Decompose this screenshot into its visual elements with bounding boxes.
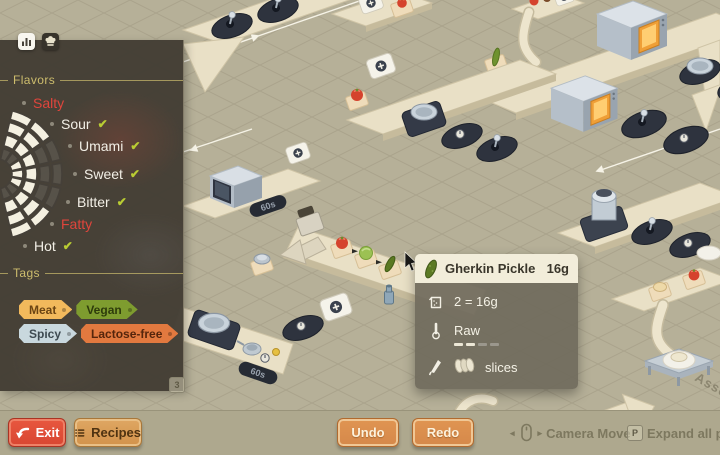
check-icon: ✔	[63, 239, 73, 253]
mouse-icon	[519, 422, 534, 444]
flavor-hot: Hot ✔	[23, 238, 73, 254]
tag-meat: Meat	[19, 300, 72, 319]
flavor-fatty: Fatty ✔	[50, 216, 92, 232]
tags-section-header: Tags	[0, 266, 183, 280]
list-icon	[75, 427, 85, 439]
bottom-bar: Exit Recipes Undo Redo ◂ ▸ Camera Move P…	[0, 410, 720, 455]
dial[interactable]	[297, 322, 305, 330]
cook-progress-segment	[466, 343, 475, 346]
item-tooltip: Gherkin Pickle 16g 2 = 16g Raw slices	[415, 254, 578, 389]
slices-icon	[454, 357, 476, 377]
flavor-dot-icon	[22, 101, 26, 105]
tooltip-header: Gherkin Pickle 16g	[415, 254, 578, 283]
tag-vegan: Vegan	[76, 300, 137, 319]
tooltip-state: Raw	[454, 323, 480, 338]
cooking-pot[interactable]	[687, 58, 713, 74]
tag-lactose-free: Lactose-free	[81, 324, 178, 343]
cook-progress-segment	[454, 343, 463, 346]
butter[interactable]	[273, 349, 280, 356]
panel-shortcut-key: 3	[169, 377, 185, 393]
ingredient-info-panel: Flavors Salty ✔ Sour ✔ Umami ✔ Sweet ✔ B…	[0, 40, 184, 391]
tag-spicy: Spicy	[19, 324, 77, 343]
flavor-wheel-cell	[39, 165, 50, 183]
tooltip-title: Gherkin Pickle	[445, 261, 540, 276]
thermometer-icon	[427, 321, 445, 340]
flavor-dot-icon	[50, 122, 54, 126]
tooltip-quantity: 2 = 16g	[454, 294, 498, 309]
back-arrow-icon	[15, 426, 30, 440]
flavor-dot-icon	[23, 244, 27, 248]
expand-shortcut-key: P	[627, 425, 643, 441]
chef-hat-icon	[42, 33, 59, 50]
recipes-button[interactable]: Recipes	[74, 418, 142, 447]
flavor-dot-icon	[50, 222, 54, 226]
cooking-pot[interactable]	[198, 313, 229, 332]
flavor-sweet: Sweet ✔	[73, 166, 140, 182]
tab-stats[interactable]	[18, 33, 35, 50]
gherkin-icon	[424, 258, 438, 280]
tooltip-weight: 16g	[547, 261, 569, 276]
check-icon: ✔	[117, 195, 127, 209]
flavor-salty: Salty ✔	[22, 95, 64, 111]
tooltip-quantity-row: 2 = 16g	[427, 293, 566, 310]
camera-move-hint: ◂ ▸ Camera Move	[510, 411, 631, 455]
check-icon: ✔	[130, 139, 140, 153]
tab-recipe-book[interactable]	[42, 33, 59, 50]
measuring-cup-icon	[427, 293, 445, 310]
redo-button[interactable]: Redo	[412, 418, 474, 447]
flavor-sour: Sour ✔	[50, 116, 108, 132]
dial[interactable]	[684, 239, 692, 247]
tag-row: Meat Vegan	[19, 300, 138, 319]
tag-row: Spicy Lactose-free	[19, 324, 178, 343]
tooltip-prep: slices	[485, 360, 518, 375]
tooltip-prep-row: slices	[427, 357, 566, 377]
undo-button[interactable]: Undo	[337, 418, 399, 447]
flavor-umami: Umami ✔	[68, 138, 140, 154]
dial[interactable]	[261, 354, 269, 362]
arrow-right-icon: ▸	[538, 428, 543, 439]
cook-progress-segment	[490, 343, 499, 346]
cook-progress-segment	[478, 343, 487, 346]
check-icon: ✔	[98, 117, 108, 131]
flavors-section-header: Flavors	[0, 73, 183, 87]
ingredient[interactable]	[654, 283, 667, 292]
check-icon: ✔	[130, 167, 140, 181]
flavor-dot-icon	[68, 144, 72, 148]
tooltip-state-row: Raw	[427, 321, 566, 340]
tags-title: Tags	[13, 266, 40, 280]
cook-progress	[454, 343, 566, 346]
flavors-title: Flavors	[13, 73, 55, 87]
cooking-pot[interactable]	[411, 104, 437, 120]
arrow-left-icon: ◂	[510, 428, 515, 439]
flavor-dot-icon	[66, 200, 70, 204]
tooltip-body: 2 = 16g Raw slices	[415, 283, 578, 389]
flavor-dot-icon	[73, 172, 77, 176]
exit-button[interactable]: Exit	[8, 418, 66, 447]
flavor-wheel-cell	[52, 163, 62, 185]
dial[interactable]	[456, 130, 464, 138]
expand-paths-hint: P Expand all path	[627, 411, 720, 455]
bar-chart-icon	[18, 33, 35, 50]
dial[interactable]	[680, 134, 688, 142]
flavor-bitter: Bitter ✔	[66, 194, 127, 210]
flavor-wheel-cell	[26, 167, 37, 180]
plate[interactable]	[697, 246, 720, 260]
knife-icon	[427, 358, 445, 376]
